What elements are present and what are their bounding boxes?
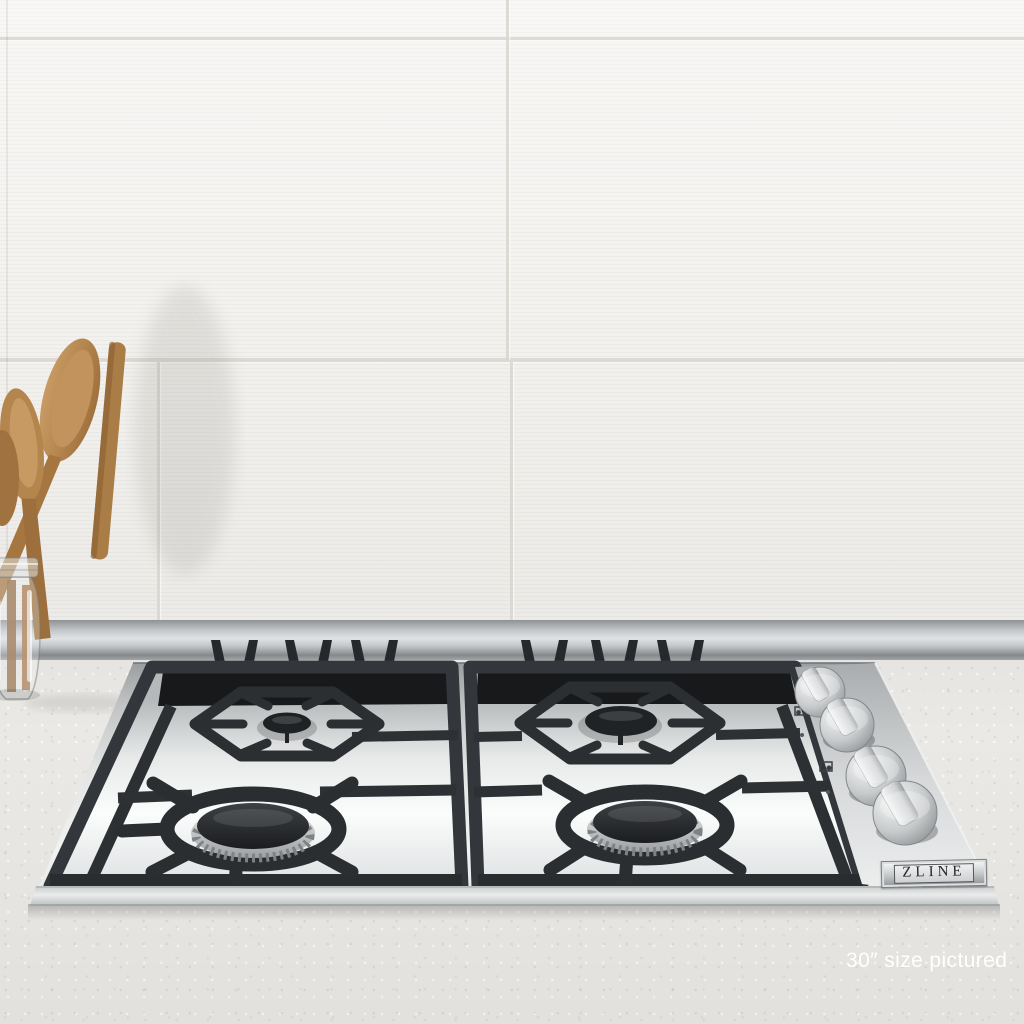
cooktop-shadow (28, 904, 1000, 920)
wall-shadow (135, 285, 235, 575)
cooktop-front-lip (30, 886, 999, 906)
panel-mark (826, 790, 830, 794)
glass-jar (0, 558, 140, 712)
brand-badge: ZLINE (881, 859, 988, 888)
gas-cooktop (30, 663, 999, 906)
scene-artwork (0, 0, 1024, 1024)
product-photo: ZLINE 30″ size pictured (0, 0, 1024, 1024)
brand-badge-plate: ZLINE (894, 863, 974, 884)
size-caption: 30″ size pictured (846, 949, 1016, 973)
panel-mark (800, 733, 804, 737)
brand-badge-text: ZLINE (902, 863, 966, 881)
